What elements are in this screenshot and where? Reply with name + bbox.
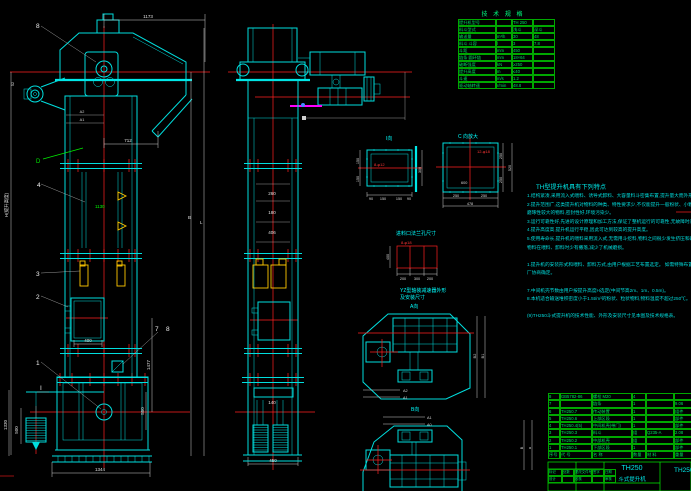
table-cell: l	[496, 40, 512, 47]
bom-table: 8GB5782-86螺栓 M2047链条19.066TH250.7传动装置1组件…	[548, 393, 691, 459]
bearing	[296, 64, 308, 76]
table-cell	[533, 61, 555, 68]
table-row: 4.提升高度高,提升机运行平稳,因此可达到较高的提升高度。	[527, 227, 691, 236]
table-cell: 4	[632, 393, 646, 400]
dim-B1: B1	[481, 354, 485, 359]
table-row: 磨琢性较大的物料,密封性好,环境污染少。	[527, 210, 691, 219]
table-cell	[533, 75, 555, 82]
table-row: 8.本机适合输送堆积密度小于1.5t/m³的粉状、粒状物料,物料温度不超过250…	[527, 296, 691, 305]
table-cell: 厂协商确定。	[527, 270, 691, 279]
table-row: 5TH250.6上部区段1部件	[548, 415, 691, 422]
bolt-spec-I: 8-φ12	[374, 162, 385, 167]
chain-hatch	[273, 425, 288, 452]
titleblock-model: TH250	[606, 465, 658, 472]
table-row	[527, 279, 691, 288]
dim-180: 180	[268, 210, 276, 215]
reducer-note-2: 及安装尺寸	[400, 294, 425, 301]
dim-chute: 712	[124, 138, 132, 143]
table-cell: 链条	[592, 400, 632, 407]
table-cell: 1	[632, 415, 646, 422]
callout-3: 3	[36, 271, 40, 278]
table-cell: 校核	[574, 476, 592, 483]
table-cell: 名 称	[592, 451, 632, 458]
dim-chain-pitch: 1130	[95, 204, 105, 209]
titleblock-drawing-no: TH250	[674, 467, 691, 474]
dim-250: 250	[453, 194, 459, 198]
table-cell: m/s	[496, 75, 512, 82]
view-label-I: I向	[386, 135, 392, 142]
table-cell: 部件	[674, 422, 691, 429]
table-row: 3.运行可靠性好,先进的设计原理和加工方法,保证了整机运行的可靠性,无故障时间超…	[527, 219, 691, 228]
table-cell: 3	[512, 40, 533, 47]
view-label-A: A向	[410, 303, 418, 310]
table-cell: TH250.3	[560, 429, 592, 436]
dim-1477: 1477	[146, 359, 151, 370]
table-cell: 4.提升高度高,提升机运行平稳,因此可达到较高的提升高度。	[527, 227, 691, 236]
table-cell: 序号	[548, 451, 560, 458]
table-cell	[533, 68, 555, 75]
dim-150: 150	[380, 197, 386, 201]
table-cell: 斗距	[458, 47, 496, 54]
table-row	[527, 305, 691, 314]
dim-lift-height: H(提升高度)	[3, 192, 10, 217]
table-row	[527, 253, 691, 262]
callout-leaders	[41, 26, 158, 409]
dim-B: B	[188, 215, 191, 220]
dim-550: 550	[140, 407, 145, 415]
table-cell: 螺栓 M20	[592, 393, 632, 400]
view-label-B: B向	[411, 406, 419, 413]
chain-hatch	[253, 425, 268, 452]
table-cell: 磨琢性较大的物料,密封性好,环境污染少。	[527, 210, 691, 219]
table-row: 7链条19.06	[548, 400, 691, 407]
dim-600: 600	[461, 181, 467, 185]
table-cell: 部件	[674, 437, 691, 444]
table-cell: 1	[632, 422, 646, 429]
dim-90: 90	[407, 197, 411, 201]
signature-grid: 标记处数更改文件号签字日期设计校核审核	[548, 469, 606, 483]
table-cell: 3.运行可靠性好,先进的设计原理和加工方法,保证了整机运行的可靠性,无故障时间超…	[527, 219, 691, 228]
dim-door-width: 400	[84, 338, 92, 343]
dim-A0: A0	[427, 423, 432, 427]
backstop	[364, 77, 374, 101]
table-cell: 标记	[548, 469, 562, 476]
inlet-bolt-spec: 8-φ18	[401, 240, 412, 245]
table-cell: 签字	[592, 469, 604, 476]
dim-L: L	[200, 220, 203, 225]
table-cell	[646, 393, 674, 400]
table-cell	[646, 408, 674, 415]
section-mark-I: I	[40, 385, 42, 392]
table-cell: 驱动轴转速	[458, 82, 496, 89]
table-cell: 浅斗	[512, 26, 533, 33]
table-row: 提升机型号TH 250	[458, 19, 548, 26]
table-row: 1.提升机的安装形式和喂料、卸料方式,由用户根据工艺布置选定。 如需特殊布置请与…	[527, 262, 691, 271]
dim-250: 250	[499, 153, 503, 159]
dim-300: 300	[414, 277, 420, 281]
table-row: 提升高度m≤40	[458, 68, 548, 75]
table-row: 2.提升范围广,这类提升机对物料的种类、特性要求少,不仅能提升一般粉状、小颗粒状…	[527, 202, 691, 211]
dim-450: 450	[269, 458, 277, 463]
table-row: 料斗型式浅斗深斗	[458, 26, 548, 33]
table-cell: 上部区段	[592, 415, 632, 422]
view-label-C: C 向放大	[458, 133, 478, 140]
table-cell: 1.提升机的安装形式和喂料、卸料方式,由用户根据工艺布置选定。 如需特殊布置请与…	[527, 262, 691, 271]
table-cell: TH250.2	[560, 437, 592, 444]
table-cell: 传动装置	[592, 408, 632, 415]
dim-250: 250	[499, 177, 503, 183]
callout-8b: 8	[166, 326, 170, 333]
dim-a: a	[528, 446, 532, 449]
grip-dot	[301, 103, 305, 107]
table-cell: 8.本机适合输送堆积密度小于1.5t/m³的粉状、粒状物料,物料温度不超过250…	[527, 296, 691, 305]
dim-300: 300	[418, 167, 422, 173]
table-cell: TH 250	[512, 19, 533, 26]
table-cell: 部件	[674, 444, 691, 451]
table-cell	[533, 19, 555, 26]
notes-lines: 1.结构紧凑,采用流入式喂料、诱导式卸料、大容量料斗密集布置,提升量大而外形尺寸…	[527, 193, 691, 322]
table-cell: TH250.1	[560, 444, 592, 451]
table-cell: ≥250	[512, 61, 533, 68]
table-cell: 48.8	[512, 82, 533, 89]
table-row: 标记处数更改文件号签字日期	[548, 469, 606, 476]
table-cell: kN	[496, 61, 512, 68]
table-cell	[533, 54, 555, 61]
table-row: 5.使用寿命长,提升机的喂料采用流入式,无需用斗挖料,物料之间很少发生挤压和碰撞…	[527, 236, 691, 245]
dim-counterweight: 500	[14, 426, 19, 434]
callout-1: 1	[36, 360, 40, 367]
table-cell: ≤40	[512, 68, 533, 75]
dim-A1: A1	[403, 396, 408, 400]
table-row: 序号代 号名 称数量材 料重量	[548, 451, 691, 458]
discharge-chute	[152, 95, 192, 137]
table-cell: 设计	[548, 476, 562, 483]
dim-406: 406	[268, 230, 276, 235]
table-row: 4TH250.4(5)中间机壳(带门)1部件	[548, 422, 691, 429]
table-cell: 提升高度	[458, 68, 496, 75]
table-row: 料斗 斗容l37.8	[458, 40, 548, 47]
reducer-note-1: YZ型轴装减速器外形	[400, 287, 446, 294]
dim-base-width: 1344	[95, 467, 106, 472]
dim-150: 150	[356, 176, 360, 182]
table-row: 厂协商确定。	[527, 270, 691, 279]
table-cell: 1.2	[512, 75, 533, 82]
dim-250: 250	[481, 194, 487, 198]
table-cell: 物料在喂料、卸料时少有撒落,减少了机械磨损。	[527, 245, 691, 254]
table-cell: TH250.6	[560, 415, 592, 422]
bucket	[117, 265, 125, 286]
bearing	[237, 64, 249, 76]
table-cell	[533, 82, 555, 89]
dim-150: 150	[396, 197, 402, 201]
reducer	[310, 52, 365, 75]
table-cell: 深斗	[533, 26, 555, 33]
table-cell	[562, 476, 574, 483]
table-cell: 8	[548, 393, 560, 400]
table-cell: 7.中间机壳节数由用户按提升高度H选定(中间节高2m、1m、0.5m)。	[527, 288, 691, 297]
inlet-flange-label: 进料口法兰孔尺寸	[396, 230, 436, 237]
table-cell: mm	[496, 47, 512, 54]
table-cell	[646, 415, 674, 422]
table-row: 6TH250.7传动装置1组件	[548, 408, 691, 415]
table-cell: 中间机壳(带门)	[592, 422, 632, 429]
table-row: 1TH250.1下部区段1部件	[548, 444, 691, 451]
leader-D	[43, 148, 83, 159]
table-cell: 料斗型式	[458, 26, 496, 33]
table-row: 设计校核审核	[548, 476, 606, 483]
drive-plan-2	[390, 455, 458, 487]
table-cell: 链条 圆环链	[458, 54, 496, 61]
table-row: 破断强度kN≥250	[458, 61, 548, 68]
table-cell: 7	[548, 400, 560, 407]
dim-478: 478	[467, 202, 473, 206]
table-cell: Q235-A	[646, 429, 674, 436]
table-cell: 1.结构紧凑,采用流入式喂料、诱导式卸料、大容量料斗密集布置,提升量大而外形尺寸…	[527, 193, 691, 202]
table-cell: 输送量	[458, 33, 496, 40]
table-cell: (9)TH250斗式提升机的技术性能、外形及安装尺寸见本图及技术规格表。	[527, 313, 691, 322]
table-cell: 组件	[674, 408, 691, 415]
plan-view-A	[358, 314, 485, 399]
table-cell	[560, 400, 592, 407]
table-cell: 4	[548, 422, 560, 429]
table-row: 物料在喂料、卸料时少有撒落,减少了机械磨损。	[527, 245, 691, 254]
spec-table: 提升机型号TH 250料斗型式浅斗深斗输送量m³/h3048料斗 斗容l37.8…	[458, 19, 548, 89]
table-cell	[533, 47, 555, 54]
inspection-door	[71, 298, 104, 341]
table-row: 驱动轴转速r/min48.8	[458, 82, 548, 89]
detail-texts: I向 8-φ12 300 150 150 90 150 150 90 C 向放大…	[356, 133, 532, 449]
table-cell: 7.8	[533, 40, 555, 47]
dim-520: 520	[508, 165, 512, 171]
dim-A1: A1	[80, 118, 85, 122]
table-cell	[527, 253, 691, 262]
table-row: 输送量m³/h3048	[458, 33, 548, 40]
table-cell: 2.08	[674, 429, 691, 436]
table-cell: 1	[632, 444, 646, 451]
table-cell: 代 号	[560, 451, 592, 458]
table-cell: 数量	[632, 451, 646, 458]
dim-260: 260	[268, 191, 276, 196]
front-view	[24, 14, 192, 462]
spec-table-title: 技 术 规 格	[458, 9, 548, 18]
drive-plan	[393, 318, 457, 352]
table-cell: 更改文件号	[574, 469, 592, 476]
table-cell: 9.06	[674, 400, 691, 407]
table-cell: 5.使用寿命长,提升机的喂料采用流入式,无需用斗挖料,物料之间很少发生挤压和碰撞…	[527, 236, 691, 245]
table-cell: 材 料	[646, 451, 674, 458]
table-cell: 料斗 斗容	[458, 40, 496, 47]
dim-top-width: 1173	[143, 14, 153, 19]
table-cell: 30	[512, 33, 533, 40]
table-cell	[527, 305, 691, 314]
boot-section	[57, 377, 148, 450]
table-cell: 1	[548, 444, 560, 451]
motor	[318, 88, 362, 105]
takeup-wheel	[27, 86, 43, 102]
side-view	[236, 28, 380, 461]
dim-90: 90	[369, 197, 373, 201]
table-cell	[646, 422, 674, 429]
table-row: (9)TH250斗式提升机的技术性能、外形及安装尺寸见本图及技术规格表。	[527, 313, 691, 322]
bucket	[253, 265, 268, 288]
table-row: 3TH250.3料斗组Q235-A2.08	[548, 429, 691, 436]
plan-view-B	[360, 417, 532, 491]
table-row: 斗速m/s1.2	[458, 75, 548, 82]
callout-2: 2	[36, 294, 40, 301]
table-cell: m	[496, 68, 512, 75]
table-cell: 提升机型号	[458, 19, 496, 26]
dim-400: 400	[386, 254, 390, 260]
callout-D: D	[36, 159, 41, 165]
inlet-flange-detail	[390, 246, 437, 276]
dimension-texts: 1173 712 400 1344 500 1330 H(提升高度) 52 B …	[3, 14, 277, 472]
dim-B2: B2	[473, 354, 477, 359]
head-hood	[248, 28, 297, 62]
table-cell: 3	[548, 429, 560, 436]
table-cell: m³/h	[496, 33, 512, 40]
table-cell: 1	[632, 408, 646, 415]
titleblock-name: 斗式提升机	[606, 475, 658, 483]
table-row: 7.中间机壳节数由用户按提升高度H选定(中间节高2m、1m、0.5m)。	[527, 288, 691, 297]
table-cell	[674, 393, 691, 400]
dim-A1: A1	[427, 416, 432, 420]
table-cell: 部件	[674, 415, 691, 422]
table-cell: TH250.4(5)	[560, 422, 592, 429]
drive-housing	[85, 52, 118, 96]
table-cell	[592, 476, 604, 483]
table-cell: TH250.7	[560, 408, 592, 415]
table-cell: 重量	[674, 451, 691, 458]
inspection-door-side	[258, 302, 290, 340]
table-cell: 2	[548, 437, 560, 444]
dim-140: 140	[268, 400, 276, 405]
table-cell: 处数	[562, 469, 574, 476]
table-cell: 1	[632, 400, 646, 407]
table-row: 1.结构紧凑,采用流入式喂料、诱导式卸料、大容量料斗密集布置,提升量大而外形尺寸…	[527, 193, 691, 202]
dim-52: 52	[11, 82, 15, 86]
table-cell	[496, 19, 512, 26]
table-cell: 48	[533, 33, 555, 40]
table-row: 2TH250.2中部机壳组部件	[548, 437, 691, 444]
bucket	[80, 265, 88, 286]
table-cell: 2.提升范围广,这类提升机对物料的种类、特性要求少,不仅能提升一般粉状、小颗粒状…	[527, 202, 691, 211]
table-row: 8GB5782-86螺栓 M204	[548, 393, 691, 400]
chain-strands	[82, 172, 122, 248]
table-cell: 中部机壳	[592, 437, 632, 444]
table-cell	[646, 400, 674, 407]
table-cell	[496, 26, 512, 33]
table-cell	[646, 444, 674, 451]
callout-7: 7	[155, 326, 159, 333]
table-cell: 组	[632, 437, 646, 444]
table-row: 链条 圆环链mm18×64	[458, 54, 548, 61]
table-cell: 斗速	[458, 75, 496, 82]
notes-title: TH型提升机具有下列特点	[536, 182, 606, 191]
table-cell: 6	[548, 408, 560, 415]
dim-200: 200	[400, 277, 406, 281]
table-cell	[646, 437, 674, 444]
table-cell: 下部区段	[592, 444, 632, 451]
cad-drawing-canvas: 1173 712 400 1344 500 1330 H(提升高度) 52 B …	[0, 0, 691, 491]
table-cell: 组	[632, 429, 646, 436]
bolt-spec-C: 12-φ18	[477, 149, 491, 154]
dim-200: 200	[427, 277, 433, 281]
table-cell: r/min	[496, 82, 512, 89]
callout-8: 8	[36, 23, 40, 30]
callout-4: 4	[37, 182, 41, 189]
dim-left-height: 1330	[3, 419, 8, 430]
detail-view-C	[436, 136, 512, 208]
dim-B: B	[520, 446, 524, 449]
detail-view-I	[358, 146, 422, 197]
dim-A2: A2	[403, 389, 408, 393]
front-view-dimensions	[9, 14, 405, 477]
table-cell: 料斗	[592, 429, 632, 436]
table-row: 斗距mm450	[458, 47, 548, 54]
table-cell	[527, 279, 691, 288]
table-cell: 破断强度	[458, 61, 496, 68]
table-cell: mm	[496, 54, 512, 61]
table-cell: 5	[548, 415, 560, 422]
dim-A2: A2	[80, 110, 85, 114]
table-cell: 18×64	[512, 54, 533, 61]
table-cell: 450	[512, 47, 533, 54]
dim-150: 150	[356, 158, 360, 164]
table-cell: GB5782-86	[560, 393, 592, 400]
